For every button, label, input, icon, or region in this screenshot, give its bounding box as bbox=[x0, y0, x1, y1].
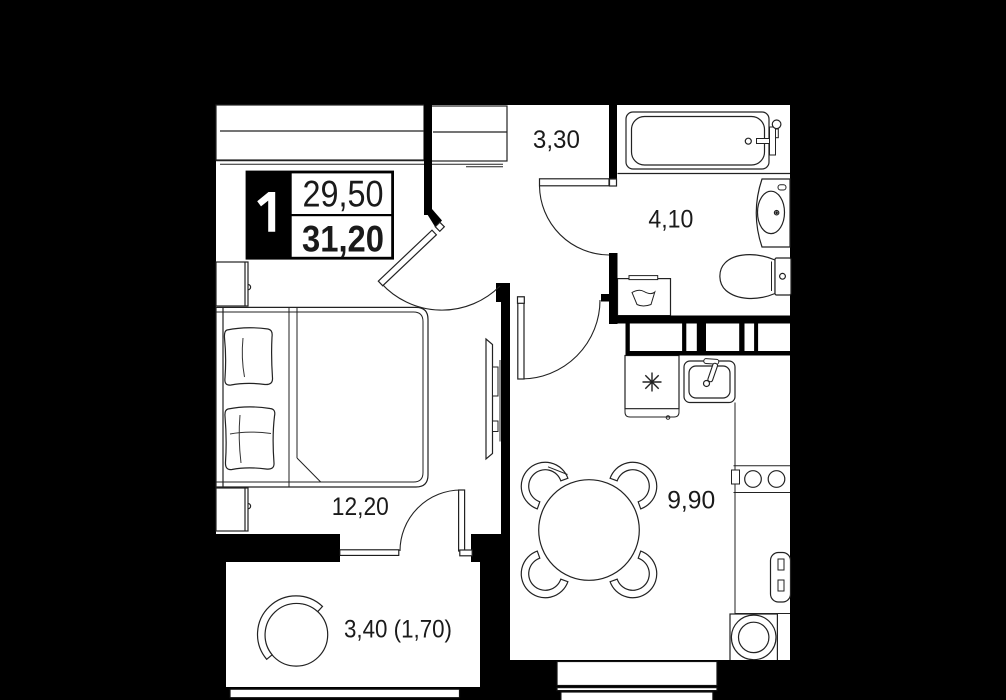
svg-text:31,20: 31,20 bbox=[302, 219, 384, 260]
svg-text:4,10: 4,10 bbox=[648, 206, 693, 234]
svg-text:29,50: 29,50 bbox=[303, 173, 384, 214]
svg-text:3,30: 3,30 bbox=[533, 126, 580, 154]
svg-text:9,90: 9,90 bbox=[667, 487, 715, 515]
svg-text:3,40 (1,70): 3,40 (1,70) bbox=[344, 616, 452, 644]
svg-text:12,20: 12,20 bbox=[332, 493, 389, 521]
